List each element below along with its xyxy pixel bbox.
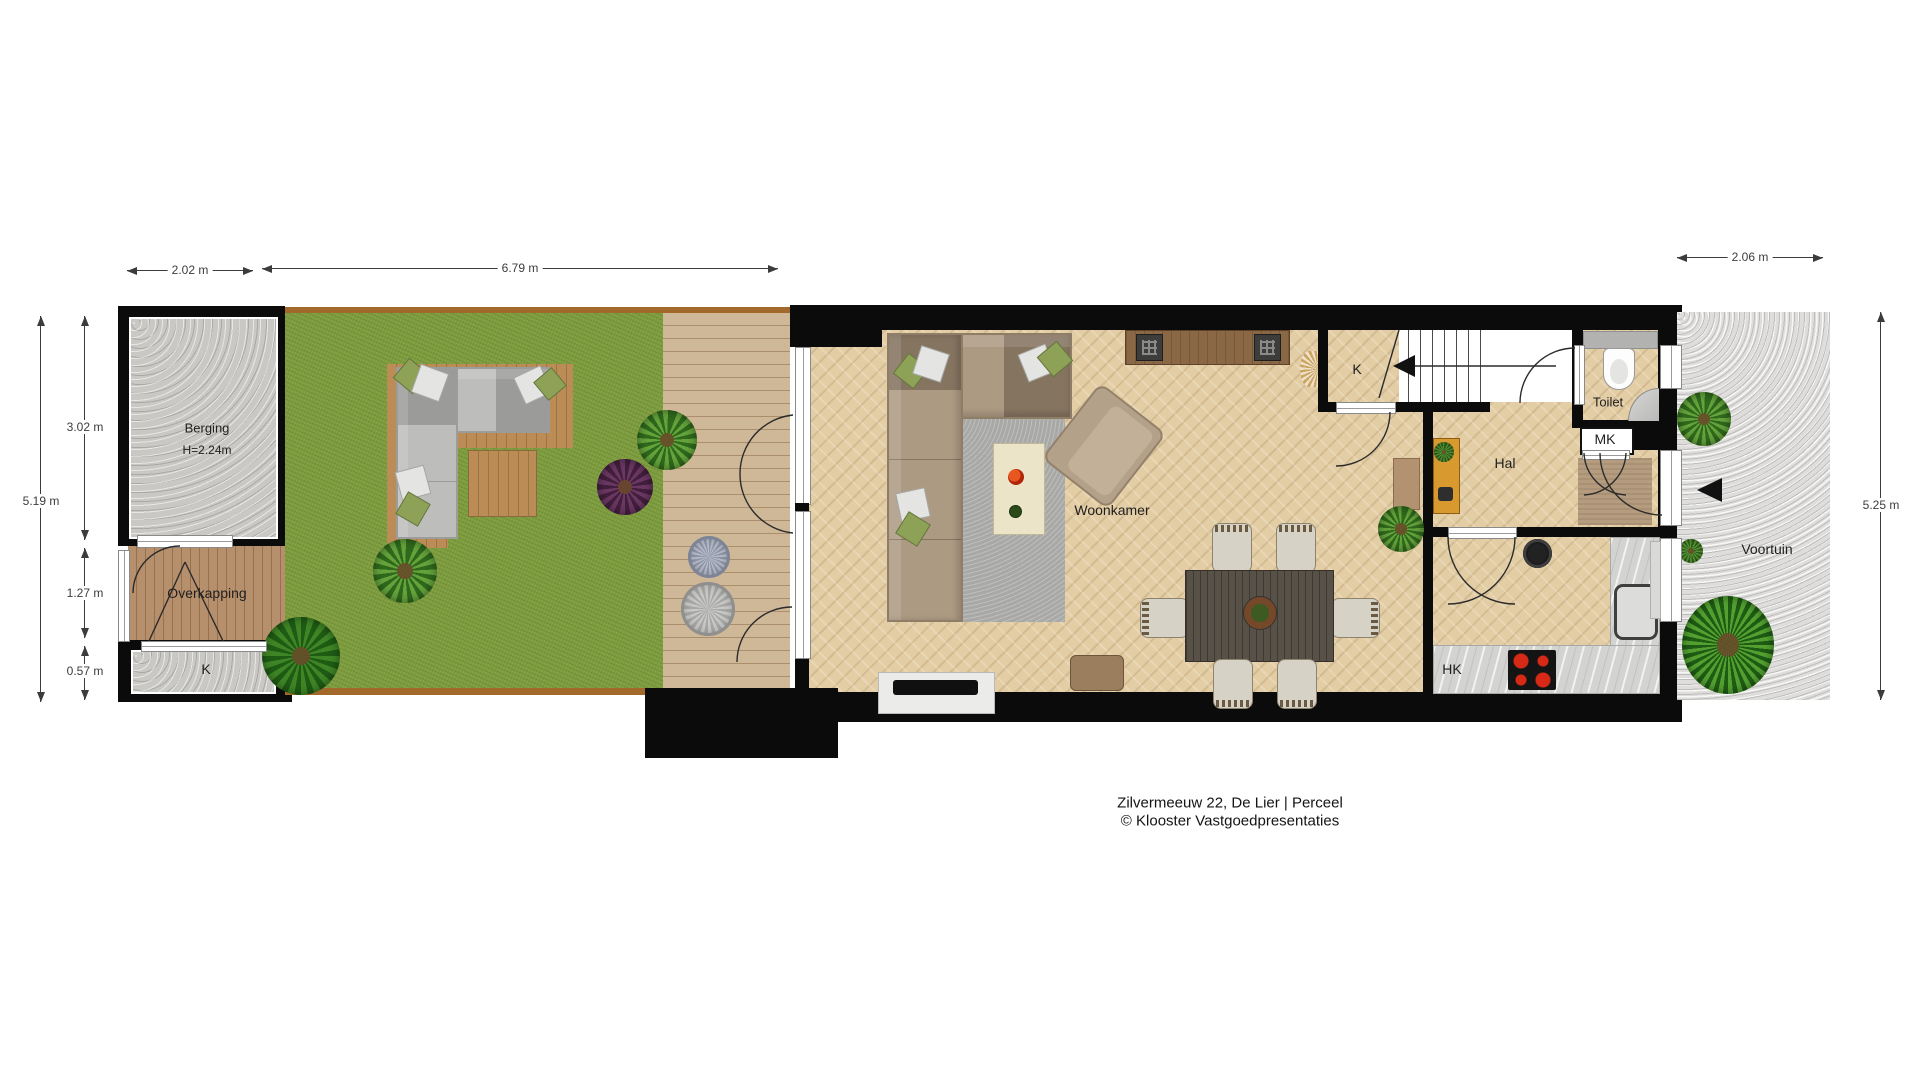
house-wall-topleft-corner bbox=[790, 305, 882, 347]
k-room-windows bbox=[141, 641, 267, 652]
k-closet-wall-left bbox=[1318, 328, 1328, 412]
garden-terrace-deck bbox=[663, 313, 790, 694]
dim-label-frontyard-width: 2.06 m bbox=[1728, 250, 1773, 264]
dim-label-left-total: 5.19 m bbox=[19, 494, 64, 508]
left-wall-bottom bbox=[795, 657, 809, 692]
room-label-k-left: K bbox=[201, 661, 210, 677]
kitchen-window-sill bbox=[1650, 541, 1661, 619]
tv-icon bbox=[893, 680, 978, 695]
decor-fan-icon bbox=[1300, 351, 1318, 387]
garden-plant-icon bbox=[262, 617, 340, 695]
room-label-woonkamer: Woonkamer bbox=[1074, 502, 1149, 518]
living-plant-icon bbox=[1378, 506, 1424, 552]
toilet-cistern-counter bbox=[1583, 331, 1658, 349]
room-label-toilet: Toilet bbox=[1593, 395, 1623, 410]
duct-block bbox=[1634, 427, 1658, 450]
toilet-window bbox=[1660, 345, 1682, 389]
wicker-chair-icon bbox=[688, 536, 730, 578]
toilet-bowl-icon bbox=[1603, 348, 1635, 390]
overkapping-side-window bbox=[118, 550, 130, 642]
dim-label-k-depth: 0.57 m bbox=[63, 664, 108, 678]
dim-label-frontyard-depth: 5.25 m bbox=[1859, 498, 1904, 512]
dining-chair bbox=[1140, 598, 1189, 638]
dim-label-shed-depth: 3.02 m bbox=[63, 420, 108, 434]
coffee-table bbox=[993, 443, 1045, 535]
plan-copyright: © Klooster Vastgoedpresentaties bbox=[1121, 813, 1339, 830]
footstool bbox=[1070, 655, 1124, 691]
room-label-mk: MK bbox=[1595, 431, 1616, 447]
dining-chair bbox=[1277, 659, 1317, 709]
kitchen-window bbox=[1660, 538, 1682, 622]
room-label-hk: HK bbox=[1442, 661, 1461, 677]
meter-cupboard-door bbox=[1582, 450, 1630, 460]
floorplan-canvas: Berging H=2.24m Overkapping K Woonkamer … bbox=[0, 0, 1920, 1080]
hall-cabinet-item bbox=[1438, 487, 1453, 501]
dining-chair bbox=[1212, 523, 1252, 573]
living-wall-cabinet bbox=[1393, 458, 1420, 510]
left-wall-joint bbox=[795, 503, 809, 511]
hall-wall-left bbox=[1423, 402, 1433, 692]
induction-hob-icon bbox=[1508, 650, 1556, 690]
living-garden-doors bbox=[795, 347, 811, 505]
wicker-chair-icon bbox=[681, 582, 735, 636]
dim-label-garden-width: 6.79 m bbox=[498, 261, 543, 275]
dining-centerpiece-icon bbox=[1243, 596, 1277, 630]
house-wall-top bbox=[790, 305, 1682, 330]
room-label-hal: Hal bbox=[1494, 455, 1515, 471]
frontyard-spiky-plant-icon bbox=[1682, 596, 1774, 694]
round-side-table-icon bbox=[1523, 539, 1552, 568]
front-door bbox=[1660, 450, 1682, 526]
garden-plant-icon bbox=[637, 410, 697, 470]
stairs-treads bbox=[1408, 330, 1492, 402]
hall-cabinet-plant-icon bbox=[1434, 442, 1454, 462]
hall-kitchen-door bbox=[1448, 527, 1517, 539]
dining-chair bbox=[1276, 523, 1316, 573]
room-label-overkapping: Overkapping bbox=[167, 585, 246, 601]
coffee-table-flower-icon bbox=[1008, 469, 1024, 485]
frontyard-plant-icon bbox=[1677, 392, 1731, 446]
dim-line-left-total bbox=[40, 316, 41, 702]
entrance-mat bbox=[1578, 458, 1652, 525]
coffee-table-plant-icon bbox=[1009, 505, 1022, 518]
garden-plant-icon bbox=[373, 539, 437, 603]
room-label-berging: Berging bbox=[185, 421, 230, 436]
garden-fence-bottom bbox=[285, 688, 663, 695]
frontyard-pot-icon bbox=[1679, 539, 1703, 563]
berging-door bbox=[137, 535, 233, 548]
dining-chair bbox=[1331, 598, 1380, 638]
garden-plant-purple-icon bbox=[597, 459, 653, 515]
sideboard-tray-icon bbox=[1254, 334, 1281, 361]
house-wall-bottomleft-corner bbox=[645, 688, 838, 758]
sideboard-tray-icon bbox=[1136, 334, 1163, 361]
room-label-berging-height: H=2.24m bbox=[182, 443, 231, 457]
room-label-k-closet: K bbox=[1352, 361, 1361, 377]
toilet-door bbox=[1574, 345, 1585, 405]
dim-label-shed-width: 2.02 m bbox=[168, 263, 213, 277]
plan-title: Zilvermeeuw 22, De Lier | Perceel bbox=[1117, 795, 1343, 812]
dining-chair bbox=[1213, 659, 1253, 709]
living-garden-window bbox=[795, 511, 811, 659]
room-label-voortuin: Voortuin bbox=[1741, 541, 1792, 557]
dim-label-overkapping-depth: 1.27 m bbox=[63, 586, 108, 600]
k-closet-door bbox=[1336, 402, 1396, 414]
garden-side-table bbox=[468, 450, 537, 517]
